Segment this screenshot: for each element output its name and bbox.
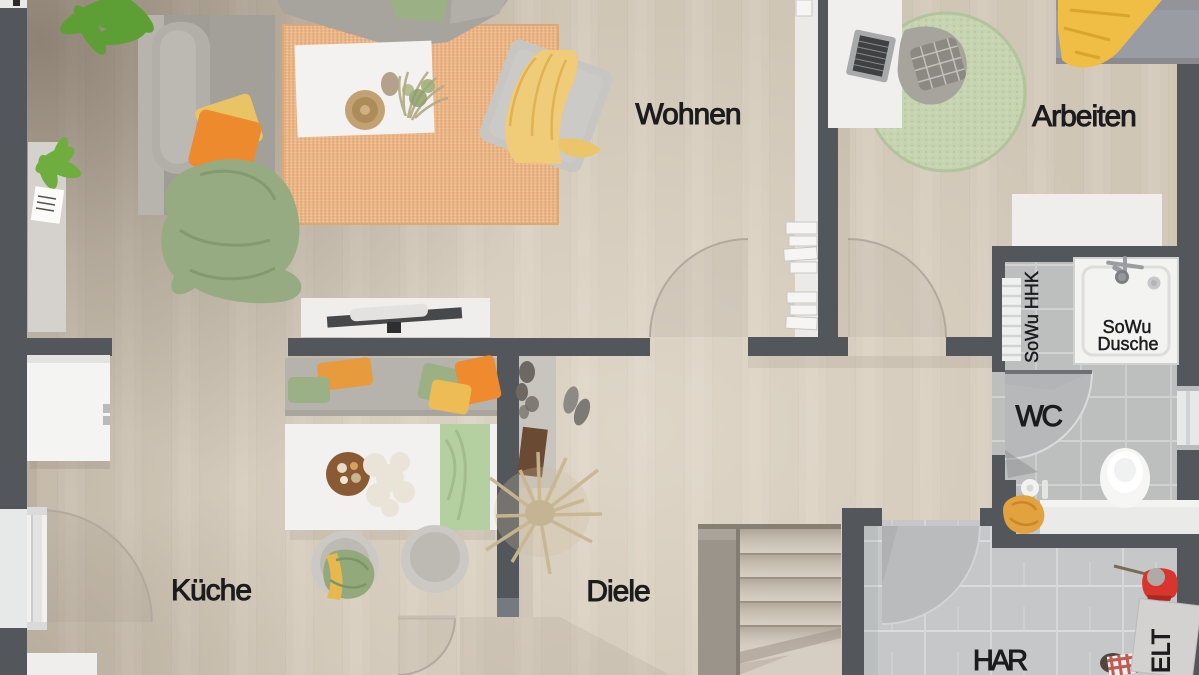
- svg-text:Küche: Küche: [171, 574, 251, 607]
- svg-text:Wohnen: Wohnen: [635, 98, 740, 131]
- svg-text:SoWu HHK: SoWu HHK: [1022, 271, 1042, 363]
- svg-text:HAR: HAR: [973, 645, 1027, 675]
- svg-text:Arbeiten: Arbeiten: [1032, 100, 1136, 133]
- svg-text:WC: WC: [1016, 400, 1063, 433]
- svg-text:Diele: Diele: [586, 575, 650, 608]
- svg-text:ELT: ELT: [1148, 629, 1176, 673]
- svg-text:Dusche: Dusche: [1097, 334, 1158, 354]
